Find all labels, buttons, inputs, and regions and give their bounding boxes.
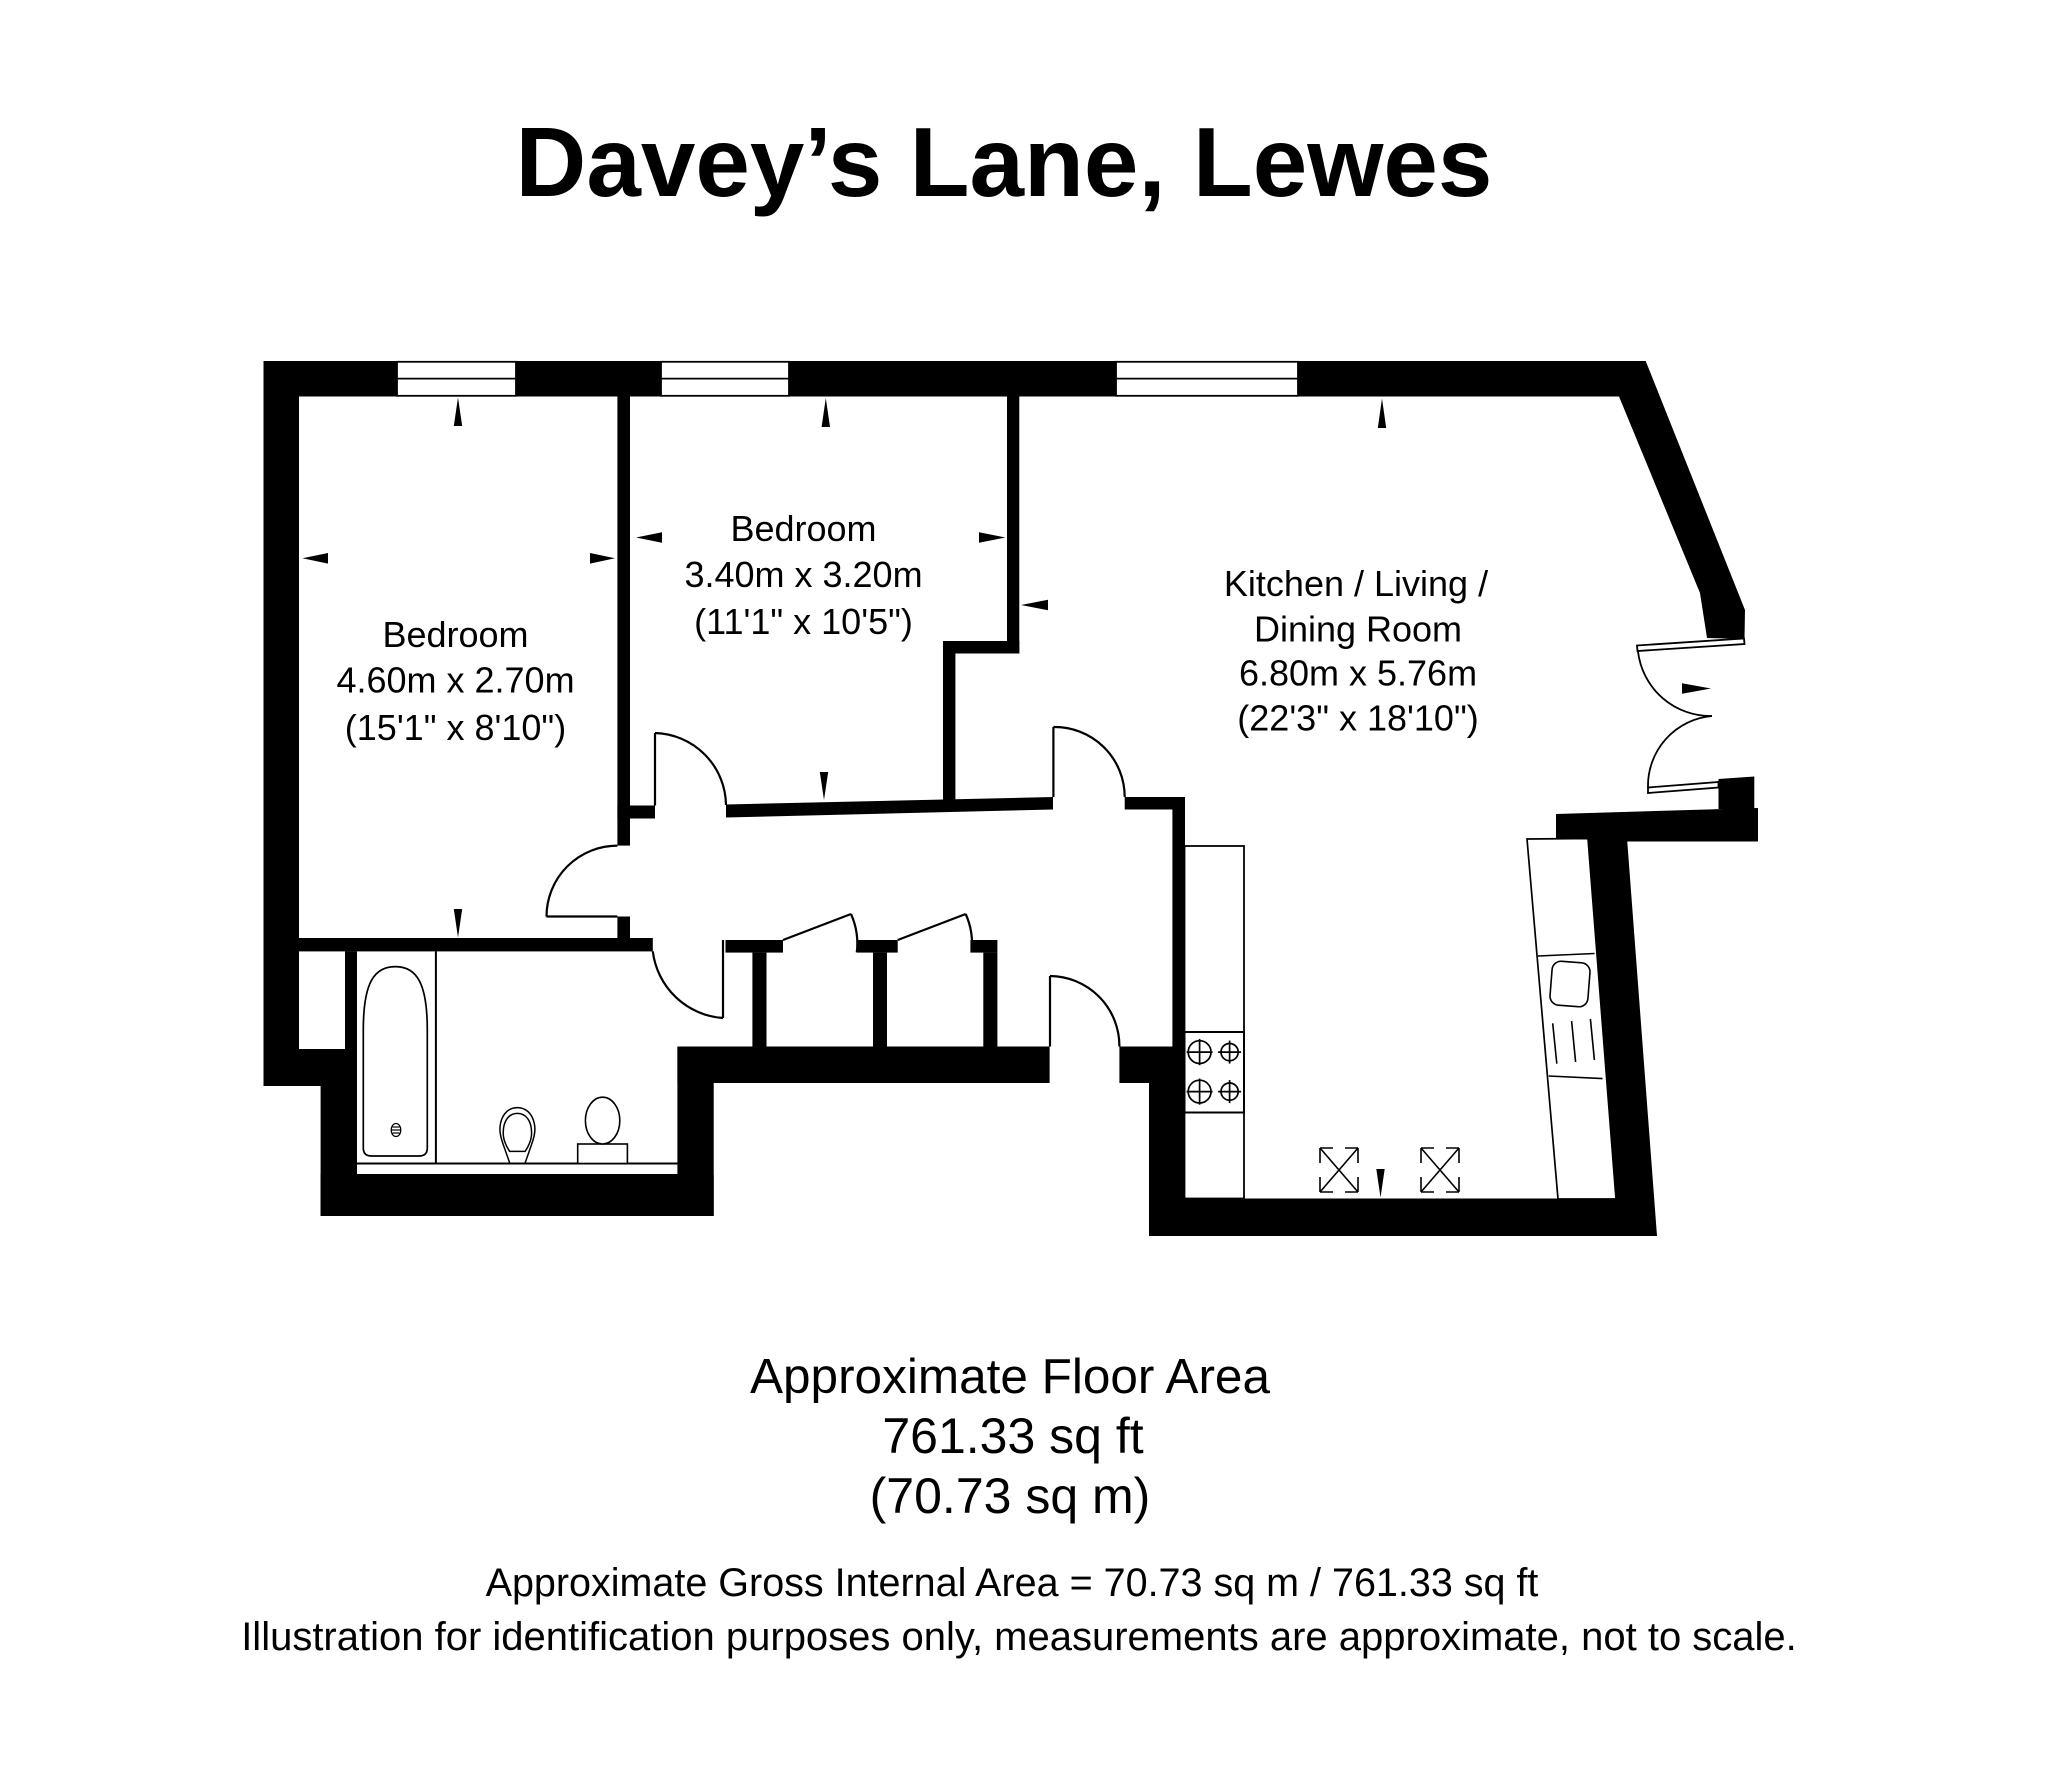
svg-text:Kitchen / Living /: Kitchen / Living /: [1224, 563, 1488, 604]
svg-text:Approximate Floor Area: Approximate Floor Area: [750, 1349, 1270, 1404]
svg-text:Dining Room: Dining Room: [1254, 609, 1462, 650]
svg-text:(22'3" x 18'10"): (22'3" x 18'10"): [1237, 698, 1478, 739]
svg-text:6.80m x 5.76m: 6.80m x 5.76m: [1239, 653, 1477, 694]
svg-text:Bedroom: Bedroom: [382, 614, 528, 655]
svg-text:Illustration for identificatio: Illustration for identification purposes…: [241, 1615, 1797, 1659]
svg-text:(70.73 sq m): (70.73 sq m): [870, 1468, 1151, 1524]
svg-text:Approximate Gross Internal Are: Approximate Gross Internal Area = 70.73 …: [486, 1561, 1539, 1605]
svg-text:(11'1" x 10'5"): (11'1" x 10'5"): [694, 601, 913, 642]
svg-text:Bedroom: Bedroom: [730, 508, 876, 549]
svg-text:761.33 sq ft: 761.33 sq ft: [882, 1408, 1143, 1464]
svg-text:(15'1" x 8'10"): (15'1" x 8'10"): [345, 707, 566, 748]
svg-text:3.40m x 3.20m: 3.40m x 3.20m: [684, 554, 922, 595]
svg-text:Davey’s Lane, Lewes: Davey’s Lane, Lewes: [516, 107, 1493, 217]
svg-text:4.60m x 2.70m: 4.60m x 2.70m: [336, 660, 574, 701]
